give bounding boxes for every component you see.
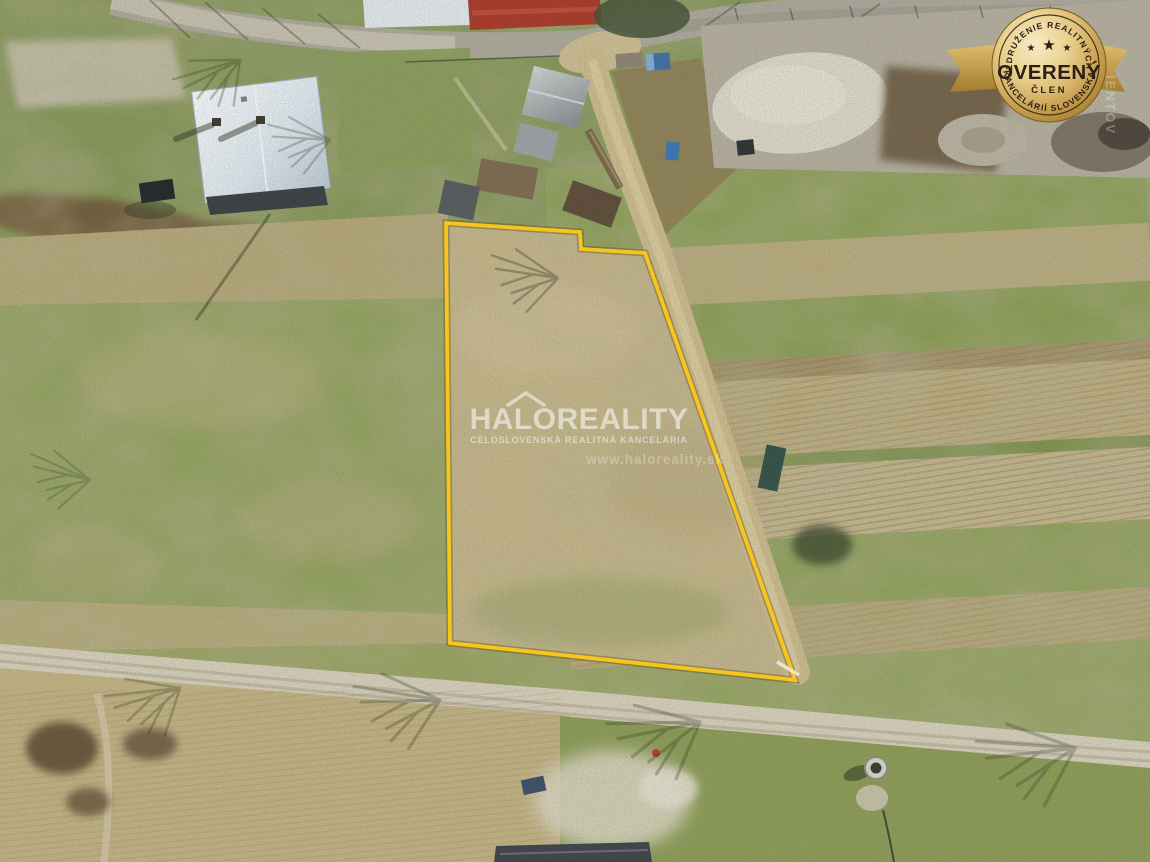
- watermark-brand: HALOREALITY: [470, 403, 689, 436]
- aerial-photo-canvas: HALOREALITY CELOSLOVENSKÁ REALITNÁ KANCE…: [0, 0, 1150, 862]
- badge-title: OVERENÝ: [997, 60, 1101, 84]
- watermark-website: www.haloreality.sk: [585, 452, 724, 467]
- watermark-tagline: CELOSLOVENSKÁ REALITNÁ KANCELÁRIA: [470, 435, 687, 445]
- star-icon: ★: [1042, 37, 1055, 54]
- side-watermark-text: IENTOV: [1103, 75, 1118, 135]
- aerial-listing-photo: HALOREALITY CELOSLOVENSKÁ REALITNÁ KANCE…: [0, 0, 1150, 862]
- star-icon: ★: [1063, 43, 1072, 54]
- badge-subtitle: ČLEN: [1031, 84, 1067, 96]
- star-icon: ★: [1027, 43, 1036, 54]
